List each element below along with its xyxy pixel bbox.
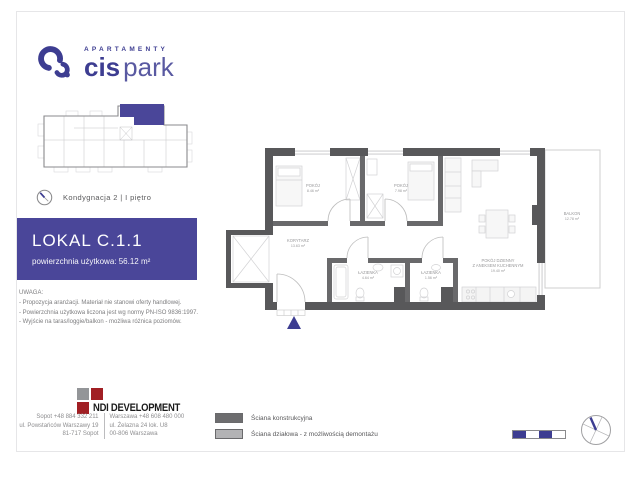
- notes-title: UWAGA:: [19, 289, 207, 298]
- room-area: 1.56 m²: [425, 276, 438, 280]
- keyplan-balconies: [38, 111, 192, 172]
- kitchen-counter: [462, 287, 536, 302]
- brand-name-bold: cis: [84, 52, 120, 82]
- building-key-plan: [26, 92, 194, 174]
- brand-text: APARTAMENTY cispark: [84, 46, 174, 80]
- sink: [508, 291, 515, 298]
- brand-name-light: park: [123, 52, 174, 82]
- room-label: BALKON: [564, 211, 581, 216]
- unit-band: LOKAL C.1.1 powierzchnia użytkowa: 56.12…: [17, 218, 197, 280]
- unit-area: powierzchnia użytkowa: 56.12 m²: [32, 257, 197, 266]
- desk: [367, 159, 377, 175]
- room-area: 4.64 m²: [362, 276, 375, 280]
- contact-line: Sopot +48 884 332 211: [18, 413, 99, 422]
- cis-park-logo-icon: [36, 44, 74, 82]
- room-area: 13.63 m²: [291, 244, 306, 248]
- room-label: ŁAZIENKA: [421, 270, 441, 275]
- legend-label: Ściana działowa - z możliwością demontaż…: [251, 431, 378, 438]
- furniture: [233, 158, 536, 302]
- brand-name: cispark: [84, 54, 174, 80]
- room-area: 12.78 m²: [565, 217, 580, 221]
- contact-line: 00-806 Warszawa: [110, 430, 191, 439]
- brochure-page: APARTAMENTY cispark Kondygn: [0, 0, 640, 480]
- office-sopot: Sopot +48 884 332 211 ul. Powstańców War…: [18, 413, 104, 439]
- north-compass-icon: [576, 410, 616, 450]
- shaft: [394, 287, 406, 302]
- office-warszawa: Warszawa +48 608 480 000 ul. Żelazna 24 …: [104, 413, 191, 439]
- legend: Ściana konstrukcyjna Ściana działowa - z…: [215, 413, 378, 445]
- toilet: [356, 288, 364, 298]
- room-area: 19.40 m²: [491, 269, 506, 273]
- entrance-threshold: [277, 310, 305, 316]
- ndi-gray-square: [77, 388, 89, 400]
- legend-item-structural: Ściana konstrukcyjna: [215, 413, 378, 423]
- scale-bar: [512, 430, 566, 439]
- legend-label: Ściana konstrukcyjna: [251, 415, 312, 422]
- contact-line: ul. Powstańców Warszawy 19: [18, 422, 99, 431]
- keyplan-highlighted-unit: [120, 104, 164, 125]
- contact-info: Sopot +48 884 332 211 ul. Powstańców War…: [18, 413, 190, 439]
- floor-plan: POKÓJ 8.46 m² POKÓJ 7.98 m² KORYTARZ 13.…: [210, 118, 630, 348]
- note-line: - Wyjście na taras/loggie/balkon - możli…: [19, 318, 207, 327]
- room-label: KORYTARZ: [287, 238, 309, 243]
- ndi-logo-row-top: [77, 388, 194, 400]
- floor-label: Kondygnacja 2 | I piętro: [63, 193, 151, 202]
- room-area: 7.98 m²: [395, 189, 408, 193]
- contact-line: 81-717 Sopot: [18, 430, 99, 439]
- floor-compass-icon: [36, 189, 53, 206]
- shaft: [441, 287, 453, 302]
- sofa: [472, 160, 498, 171]
- note-line: - Powierzchnia użytkowa liczona jest wg …: [19, 309, 207, 318]
- brand-logo: APARTAMENTY cispark: [36, 44, 174, 82]
- legend-item-partition: Ściana działowa - z możliwością demontaż…: [215, 429, 378, 439]
- room-label: POKÓJ: [394, 183, 408, 188]
- note-line: - Propozycja aranżacji. Materiał nie sta…: [19, 299, 207, 308]
- room-label: POKÓJ: [306, 183, 320, 188]
- entrance-arrow: [287, 316, 301, 329]
- unit-title: LOKAL C.1.1: [32, 231, 197, 251]
- floor-indicator: Kondygnacja 2 | I piętro: [36, 189, 151, 206]
- notes-block: UWAGA: - Propozycja aranżacji. Materiał …: [19, 289, 207, 327]
- kitchen-cabinet: [445, 158, 461, 212]
- keyplan-outline: [44, 106, 187, 167]
- contact-line: Warszawa +48 608 480 000: [110, 413, 191, 422]
- room-label: Z ANEKSEM KUCHENNYM: [473, 263, 525, 268]
- keyplan-partitions: [44, 116, 187, 167]
- ndi-red-square-top: [91, 388, 103, 400]
- sofa: [472, 171, 481, 187]
- washer: [391, 265, 403, 277]
- dining-table: [486, 210, 508, 238]
- room-label: ŁAZIENKA: [358, 270, 378, 275]
- contact-line: ul. Żelazna 24 lok. U8: [110, 422, 191, 431]
- toilet: [420, 288, 428, 298]
- partition-wall-swatch: [215, 429, 243, 439]
- structural-wall-swatch: [215, 413, 243, 423]
- developer-logo: NDI DEVELOPMENT: [77, 388, 194, 414]
- room-area: 8.46 m²: [307, 189, 320, 193]
